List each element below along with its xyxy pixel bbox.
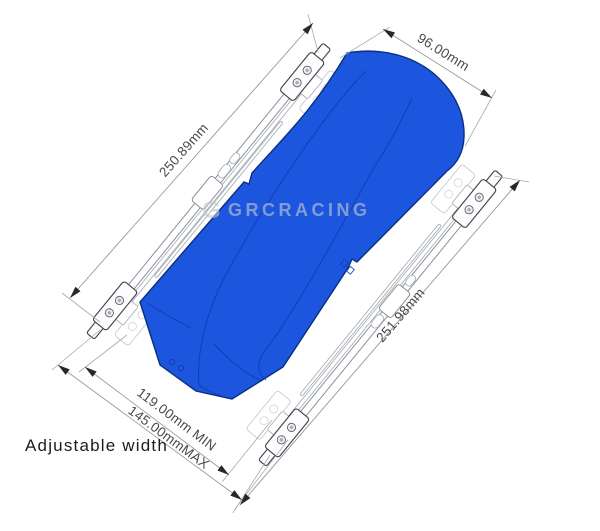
arrowhead-icon <box>217 465 231 478</box>
watermark-logo-icon: G <box>202 197 221 224</box>
arrowhead-icon <box>56 362 70 375</box>
dimension-left-bar-label: 250.89mm <box>156 120 211 180</box>
extension-line <box>79 335 127 372</box>
extension-line <box>62 293 100 322</box>
technical-drawing: 250.89mm 96.00mm 251.98mm 119.00mm MIN 1… <box>0 0 600 531</box>
arrowhead-icon <box>480 89 494 101</box>
extension-line <box>308 14 318 52</box>
roof-box-body <box>140 51 464 399</box>
extension-line <box>52 330 100 370</box>
arrowhead-icon <box>83 364 97 377</box>
adjustable-width-caption: Adjustable width <box>25 436 168 455</box>
roof-box <box>140 51 464 399</box>
drawing-canvas: 250.89mm 96.00mm 251.98mm 119.00mm MIN 1… <box>0 0 600 531</box>
watermark: G GRCRACING <box>202 197 371 224</box>
extension-line <box>465 90 496 146</box>
watermark-text: GRCRACING <box>228 200 371 220</box>
